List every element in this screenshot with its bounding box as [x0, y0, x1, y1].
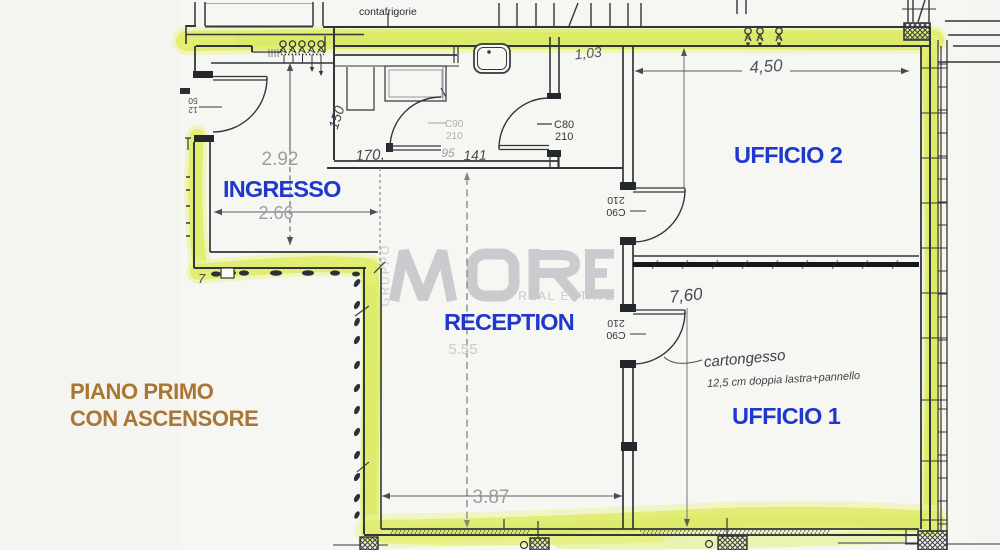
svg-text:INGRESSO: INGRESSO: [223, 176, 341, 202]
svg-text:REAL ESTATE: REAL ESTATE: [518, 289, 615, 303]
svg-text:170,: 170,: [355, 146, 385, 165]
svg-text:CON ASCENSORE: CON ASCENSORE: [70, 406, 258, 431]
svg-text:7: 7: [198, 271, 206, 286]
svg-text:2.92: 2.92: [262, 149, 299, 170]
svg-text:210: 210: [607, 194, 625, 206]
svg-text:7,60: 7,60: [669, 284, 704, 306]
svg-text:C90: C90: [445, 119, 464, 130]
svg-text:50: 50: [188, 96, 198, 106]
svg-text:C80: C80: [554, 119, 574, 131]
svg-text:141: 141: [463, 147, 487, 164]
svg-text:210: 210: [446, 131, 463, 142]
svg-text:3.87: 3.87: [473, 487, 510, 508]
svg-text:2.66: 2.66: [258, 203, 293, 223]
svg-text:C90: C90: [606, 329, 625, 341]
svg-text:PIANO PRIMO: PIANO PRIMO: [70, 379, 214, 404]
svg-text:5.55: 5.55: [448, 341, 477, 358]
svg-text:C90: C90: [606, 206, 625, 218]
svg-text:210: 210: [555, 131, 573, 143]
svg-text:contafrigorie: contafrigorie: [359, 6, 417, 18]
svg-text:UFFICIO 2: UFFICIO 2: [734, 142, 843, 168]
svg-text:4,50: 4,50: [749, 56, 784, 77]
svg-text:UFFICIO 1: UFFICIO 1: [732, 403, 841, 429]
svg-text:210: 210: [607, 317, 625, 329]
svg-text:RECEPTION: RECEPTION: [444, 309, 574, 335]
svg-text:95: 95: [441, 146, 455, 160]
svg-text:1,03: 1,03: [574, 44, 603, 63]
